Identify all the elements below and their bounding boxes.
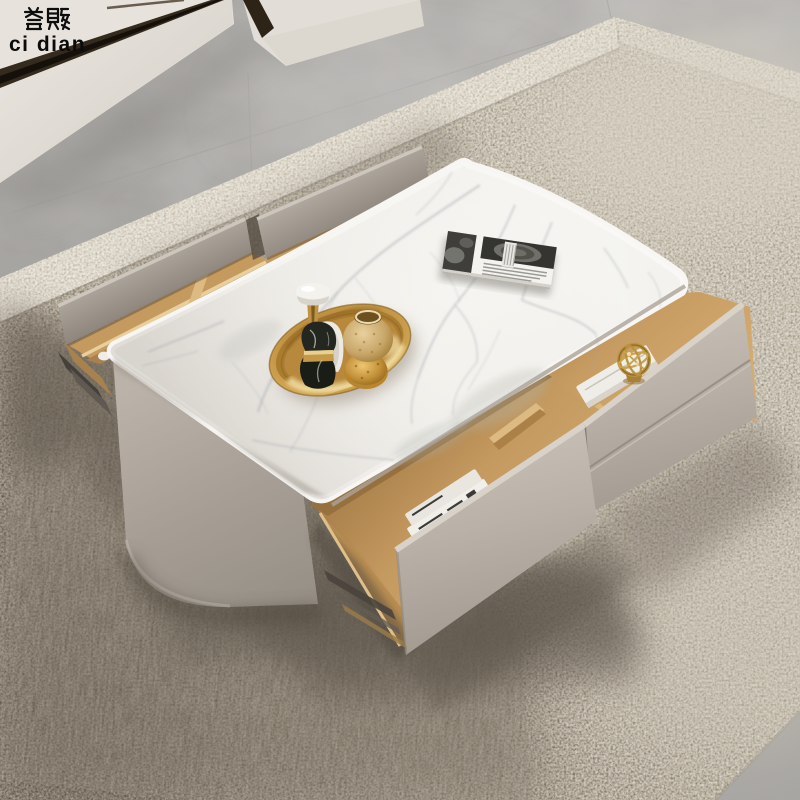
svg-text:ci dian: ci dian — [9, 33, 86, 56]
